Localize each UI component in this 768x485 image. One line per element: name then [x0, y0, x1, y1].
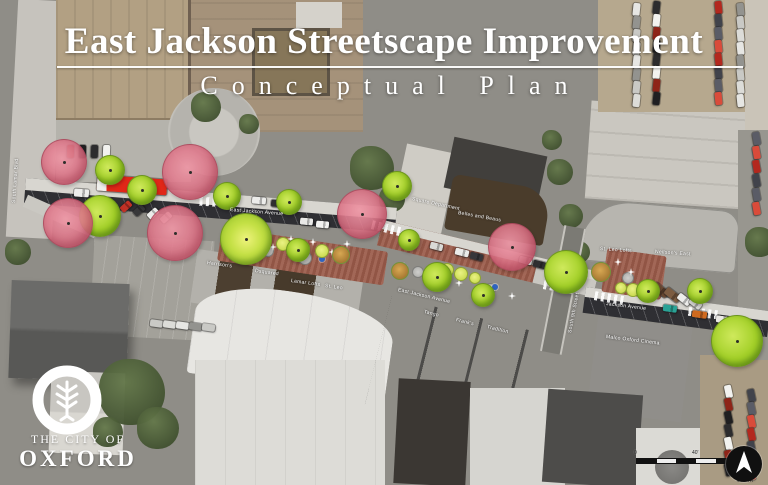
building-label: Tango: [423, 309, 439, 318]
building-label: St. Leo: [325, 283, 344, 291]
logo-text-city-of: THE CITY OF: [18, 432, 138, 447]
street-label: East Jackson Avenue: [230, 207, 284, 217]
building-label: Belles and Beaus: [457, 210, 501, 224]
building-label: St. Leo Lofts: [600, 246, 632, 254]
street-label: South Lamar Blvd: [11, 158, 20, 203]
title-block: East Jackson Streetscape Improvement Con…: [0, 22, 768, 101]
building-label: Frank's: [455, 317, 474, 327]
building-label: Harrison's: [207, 260, 233, 269]
scale-segment: [676, 459, 696, 463]
north-arrow-pointer: [736, 451, 752, 473]
building-label: Neilson's East: [655, 249, 691, 257]
building-label: Lamar Lofts: [291, 278, 321, 288]
scale-segment: [696, 459, 716, 463]
scale-segment: [657, 459, 677, 463]
street-label: Jackson Avenue: [606, 301, 647, 312]
street-label: East Jackson Avenue: [397, 287, 450, 305]
scale-label-0: 0: [634, 450, 637, 456]
building-label: Square Department: [411, 196, 460, 212]
title-underline: [57, 66, 743, 68]
building-label: Tradition: [486, 324, 509, 335]
page-title: East Jackson Streetscape Improvement: [0, 22, 768, 62]
street-label: South 9th Street: [567, 292, 581, 333]
north-label: NORTH: [723, 478, 767, 483]
north-arrow-icon: [726, 446, 762, 482]
page-subtitle: Conceptual Plan: [0, 71, 768, 101]
building-label: Malco Oxford Cinema: [606, 334, 660, 347]
scale-label-mid: 40': [692, 450, 699, 456]
logo-text-oxford: OXFORD: [18, 446, 138, 472]
scale-segment: [637, 459, 657, 463]
streetscape-plan-canvas: East Jackson AvenueEast Jackson AvenueJa…: [0, 0, 768, 485]
building-label: Dsquared: [255, 268, 280, 277]
city-of-oxford-logo: THE CITY OF OXFORD: [18, 360, 138, 480]
